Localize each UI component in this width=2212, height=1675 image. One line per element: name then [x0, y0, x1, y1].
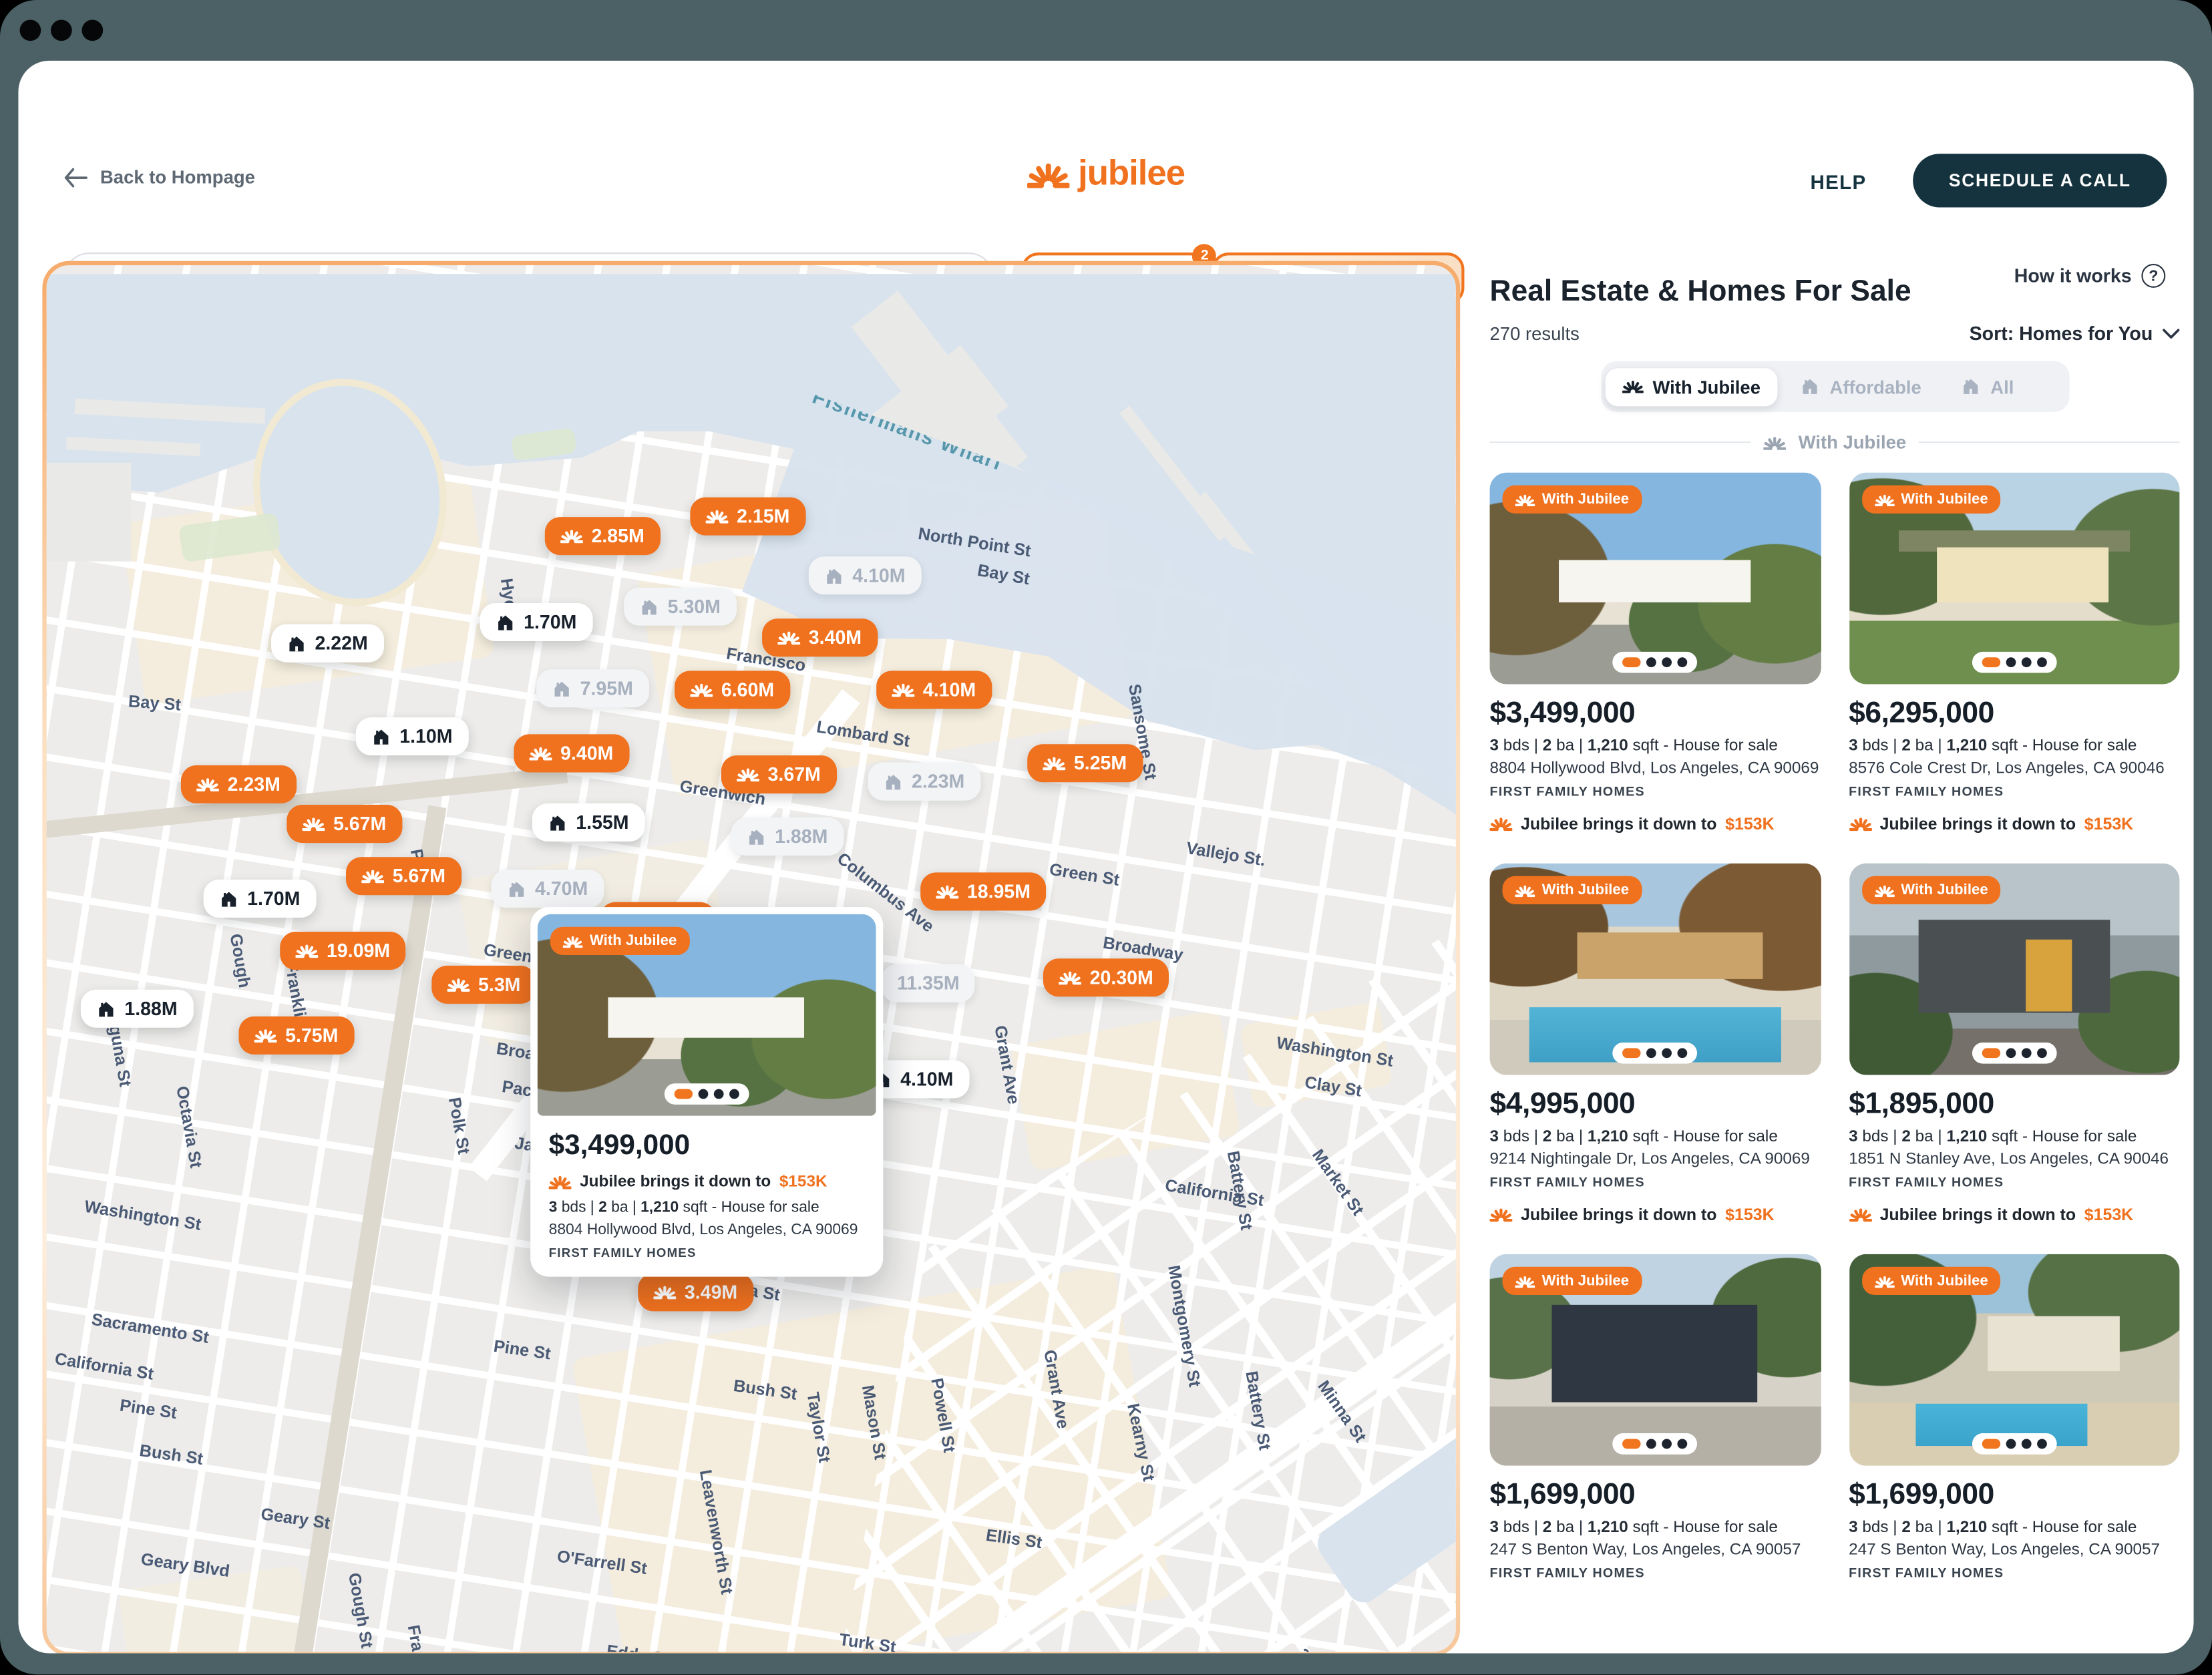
sunburst-logo-icon [1027, 159, 1069, 190]
listing-card[interactable]: With Jubilee $1,895,000 3 bds | 2 ba | 1… [1849, 864, 2179, 1225]
listing-price: $4,995,000 [1490, 1088, 1821, 1122]
screen: Back to Hompage jubilee HELP SCHEDULE A … [0, 0, 2212, 1675]
sunburst-icon [777, 628, 800, 646]
map-price-pin[interactable]: 5.25M [1027, 744, 1142, 782]
map-price-pin[interactable]: 3.40M [762, 618, 877, 657]
listing-promo: Jubilee brings it down to $153K [1849, 814, 2179, 834]
map-price-pin[interactable]: 3.67M [721, 755, 836, 793]
listing-broker: FIRST FAMILY HOMES [1849, 784, 2179, 798]
map-price-pin[interactable]: 2.22M [271, 624, 383, 663]
with-jubilee-badge: With Jubilee [550, 927, 690, 955]
pin-price-label: 19.09M [327, 940, 390, 962]
sunburst-icon [295, 942, 318, 960]
window-dot[interactable] [20, 20, 41, 41]
promo-text: Jubilee brings it down to [1521, 1205, 1717, 1225]
app-window: Back to Hompage jubilee HELP SCHEDULE A … [18, 61, 2193, 1654]
house-icon [824, 566, 844, 586]
pin-price-label: 5.25M [1074, 753, 1127, 774]
map-marina [47, 463, 132, 562]
pin-price-label: 5.67M [393, 866, 445, 887]
house-icon [96, 998, 116, 1018]
pin-price-label: 4.70M [535, 878, 588, 900]
map-price-pin[interactable]: 5.75M [238, 1016, 353, 1055]
map-listing-popup[interactable]: With Jubilee $3,499,000 Jubilee brings i… [530, 907, 883, 1276]
listing-price: $1,699,000 [1849, 1479, 2179, 1513]
help-link[interactable]: HELP [1811, 171, 1867, 194]
pin-price-label: 4.10M [923, 679, 976, 701]
sunburst-icon [254, 1027, 277, 1045]
sunburst-icon [1874, 492, 1894, 507]
sunburst-icon [196, 775, 219, 793]
window-dot[interactable] [51, 20, 72, 41]
badge-label: With Jubilee [1901, 491, 1988, 508]
pin-price-label: 2.15M [737, 506, 789, 527]
house-icon [219, 889, 239, 909]
house-icon [884, 771, 904, 791]
listing-price: $1,699,000 [1490, 1479, 1821, 1513]
map-price-pin[interactable]: 5.30M [624, 588, 736, 626]
map-price-pin[interactable]: 6.60M [675, 671, 789, 709]
with-jubilee-badge: With Jubilee [1503, 1267, 1642, 1295]
map-price-pin[interactable]: 20.30M [1043, 958, 1169, 996]
sunburst-icon [690, 681, 713, 699]
sunburst-icon [1874, 882, 1894, 898]
chevron-down-icon [2163, 328, 2179, 339]
promo-amount: $153K [1725, 814, 1774, 834]
sunburst-icon [361, 867, 384, 885]
photo-carousel-dots[interactable] [1972, 1043, 2056, 1064]
pin-price-label: 7.95M [580, 678, 633, 699]
with-jubilee-badge: With Jubilee [1861, 1267, 2001, 1295]
listing-meta: 3 bds | 2 ba | 1,210 sqft - House for sa… [1490, 1519, 1821, 1536]
listing-broker: FIRST FAMILY HOMES [1490, 784, 1821, 798]
listing-broker: FIRST FAMILY HOMES [1849, 1175, 2179, 1189]
promo-amount: $153K [2084, 1205, 2133, 1225]
tab-label: Affordable [1829, 376, 1921, 397]
pin-price-label: 1.88M [124, 998, 177, 1019]
pin-price-label: 2.23M [912, 771, 964, 792]
window-dot[interactable] [82, 20, 104, 41]
sunburst-icon [706, 507, 729, 525]
pin-price-label: 1.88M [775, 826, 827, 848]
map-price-pin[interactable]: 2.85M [545, 517, 660, 555]
listing-meta: 3 bds | 2 ba | 1,210 sqft - House for sa… [1849, 1519, 2179, 1536]
map-price-pin[interactable]: 2.23M [868, 763, 980, 801]
tab-with-jubilee[interactable]: With Jubilee [1605, 367, 1778, 405]
sunburst-icon [737, 765, 759, 783]
popup-address: 8804 Hollywood Blvd, Los Angeles, CA 900… [549, 1222, 865, 1238]
with-jubilee-badge: With Jubilee [1861, 486, 2001, 514]
sunburst-icon [549, 1173, 572, 1190]
badge-label: With Jubilee [1542, 491, 1629, 508]
map-price-pin[interactable]: 18.95M [920, 872, 1046, 910]
pin-price-label: 5.3M [478, 974, 520, 996]
map-price-pin[interactable]: 4.70M [492, 870, 604, 908]
map-price-pin[interactable]: 4.10M [876, 671, 991, 709]
sunburst-icon [303, 815, 325, 833]
pin-price-label: 5.30M [668, 596, 721, 617]
badge-label: With Jubilee [1542, 1272, 1629, 1289]
badge-label: With Jubilee [1901, 882, 1988, 898]
listing-card[interactable]: With Jubilee $1,699,000 3 bds | 2 ba | 1… [1490, 1254, 1821, 1580]
listing-address: 247 S Benton Way, Los Angeles, CA 90057 [1490, 1542, 1821, 1559]
listing-address: 9214 Nightingale Dr, Los Angeles, CA 900… [1490, 1151, 1821, 1168]
sunburst-icon [530, 744, 552, 762]
map-price-pin[interactable]: 9.40M [514, 734, 628, 772]
listing-photo[interactable]: With Jubilee [1849, 864, 2179, 1075]
results-panel: Real Estate & Homes For Sale 270 results… [1471, 261, 2193, 1654]
listing-photo[interactable]: With Jubilee [1490, 1254, 1821, 1466]
map-price-pin[interactable]: 1.88M [731, 817, 844, 856]
sunburst-icon [1490, 1206, 1513, 1223]
promo-text: Jubilee brings it down to [1880, 1205, 2076, 1225]
desktop-background: Back to Hompage jubilee HELP SCHEDULE A … [0, 0, 2212, 1675]
listing-meta: 3 bds | 2 ba | 1,210 sqft - House for sa… [1849, 738, 2179, 755]
listing-price: $6,295,000 [1849, 697, 2179, 731]
map-price-pin[interactable]: 1.70M [480, 603, 592, 641]
house-icon [496, 612, 516, 632]
listing-address: 247 S Benton Way, Los Angeles, CA 90057 [1849, 1542, 2179, 1559]
map-price-pin[interactable]: 7.95M [536, 669, 649, 707]
pin-price-label: 1.55M [576, 812, 628, 833]
listing-meta: 3 bds | 2 ba | 1,210 sqft - House for sa… [1490, 738, 1821, 755]
listing-photo[interactable]: With Jubilee [1849, 1254, 2179, 1466]
sort-dropdown[interactable]: Sort: Homes for You [1970, 323, 2180, 345]
popup-price: $3,499,000 [549, 1130, 865, 1163]
listing-meta: 3 bds | 2 ba | 1,210 sqft - House for sa… [1849, 1129, 2179, 1145]
listing-photo[interactable]: With Jubilee [1490, 864, 1821, 1075]
listing-broker: FIRST FAMILY HOMES [1849, 1566, 2179, 1580]
sunburst-icon [447, 976, 470, 994]
pin-price-label: 4.10M [852, 565, 905, 586]
map-price-pin[interactable]: 1.55M [532, 803, 644, 842]
logo-text: jubilee [1078, 154, 1185, 194]
house-icon [507, 879, 527, 899]
map-price-pin[interactable]: 11.35M [882, 964, 975, 1002]
house-icon [371, 727, 391, 747]
arrow-left-icon [63, 167, 87, 187]
promo-text: Jubilee brings it down to [580, 1173, 771, 1190]
listing-promo: Jubilee brings it down to $153K [1490, 814, 1821, 834]
pin-price-label: 1.70M [247, 888, 300, 910]
listing-card[interactable]: With Jubilee $3,499,000 3 bds | 2 ba | 1… [1490, 473, 1821, 834]
listing-photo[interactable]: With Jubilee [1849, 473, 2179, 685]
sunburst-icon [1874, 1273, 1894, 1288]
map-price-pin[interactable]: 5.67M [287, 805, 401, 843]
listing-price: $1,895,000 [1849, 1088, 2179, 1122]
photo-carousel-dots[interactable] [1972, 1433, 2056, 1455]
pin-price-label: 6.60M [721, 679, 774, 701]
jubilee-logo[interactable]: jubilee [1027, 154, 1185, 194]
listing-card[interactable]: With Jubilee $4,995,000 3 bds | 2 ba | 1… [1490, 864, 1821, 1225]
listing-price: $3,499,000 [1490, 697, 1821, 731]
divider-label: With Jubilee [1799, 431, 1906, 453]
sunburst-icon [1059, 968, 1081, 986]
map-price-pin[interactable]: 4.10M [809, 556, 921, 594]
street-label: Bay St [128, 691, 182, 715]
promo-text: Jubilee brings it down to [1521, 814, 1717, 834]
listing-meta: 3 bds | 2 ba | 1,210 sqft - House for sa… [1490, 1129, 1821, 1145]
sunburst-icon [936, 882, 958, 900]
pin-price-label: 18.95M [967, 881, 1031, 902]
sunburst-icon [653, 1283, 676, 1301]
badge-label: With Jubilee [1901, 1272, 1988, 1289]
house-icon [552, 679, 572, 699]
sunburst-icon [1849, 815, 1871, 832]
listing-card[interactable]: With Jubilee $6,295,000 3 bds | 2 ba | 1… [1849, 473, 2179, 834]
badge-label: With Jubilee [1542, 882, 1629, 898]
listing-address: 8804 Hollywood Blvd, Los Angeles, CA 900… [1490, 761, 1821, 777]
schedule-call-button[interactable]: SCHEDULE A CALL [1913, 154, 2167, 207]
sort-label: Sort: Homes for You [1970, 323, 2153, 345]
map-price-pin[interactable]: 3.49M [638, 1273, 753, 1311]
with-jubilee-badge: With Jubilee [1503, 876, 1642, 904]
pin-price-label: 2.23M [228, 774, 281, 795]
popup-meta: 3 bds | 2 ba | 1,210 sqft - House for sa… [549, 1199, 865, 1216]
with-jubilee-badge: With Jubilee [1861, 876, 2001, 904]
with-jubilee-divider: With Jubilee [1490, 431, 2180, 453]
sunburst-icon [892, 681, 914, 699]
photo-carousel-dots[interactable] [1613, 652, 1698, 673]
house-icon [548, 813, 568, 833]
promo-amount: $153K [2084, 814, 2133, 834]
promo-text: Jubilee brings it down to [1880, 814, 2076, 834]
map-price-pin[interactable]: 1.10M [356, 717, 468, 755]
listing-photo[interactable]: With Jubilee [1490, 473, 1821, 685]
sunburst-icon [563, 933, 583, 948]
back-to-homepage-link[interactable]: Back to Hompage [63, 166, 255, 188]
sunburst-icon [1515, 1273, 1535, 1288]
house-icon [287, 633, 307, 653]
sunburst-icon [1515, 882, 1535, 898]
pin-price-label: 1.10M [399, 726, 452, 747]
pin-price-label: 3.40M [809, 627, 862, 648]
map-price-pin[interactable]: 2.15M [690, 498, 805, 536]
app-header: Back to Hompage jubilee HELP SCHEDULE A … [18, 61, 2193, 224]
sunburst-icon [1515, 492, 1535, 507]
listing-address: 1851 N Stanley Ave, Los Angeles, CA 9004… [1849, 1151, 2179, 1168]
pin-price-label: 2.22M [315, 632, 368, 654]
photo-carousel-dots[interactable] [665, 1083, 749, 1105]
map-price-pin[interactable]: 19.09M [280, 932, 405, 970]
pin-price-label: 5.67M [333, 813, 386, 835]
map-price-pin[interactable]: 1.70M [204, 880, 316, 918]
map-price-pin[interactable]: 1.88M [81, 990, 193, 1028]
sunburst-icon [1490, 815, 1513, 832]
map-price-pin[interactable]: 5.67M [346, 857, 461, 895]
back-label: Back to Hompage [100, 166, 255, 188]
house-icon [1961, 377, 1981, 397]
results-count: 270 results [1490, 323, 1580, 345]
map-price-pin[interactable]: 2.23M [181, 765, 296, 803]
sunburst-icon [1043, 754, 1065, 772]
house-icon [747, 827, 767, 847]
popup-broker: FIRST FAMILY HOMES [549, 1246, 865, 1260]
map-frame: Fishermans WharfNorth Point StBay StBay … [42, 261, 1460, 1654]
with-jubilee-badge: With Jubilee [1503, 486, 1642, 514]
listing-card[interactable]: With Jubilee $1,699,000 3 bds | 2 ba | 1… [1849, 1254, 2179, 1580]
pin-price-label: 4.10M [900, 1069, 953, 1090]
pin-price-label: 2.85M [592, 526, 644, 547]
listing-promo: Jubilee brings it down to $153K [1490, 1205, 1821, 1225]
tab-label: With Jubilee [1652, 376, 1760, 397]
sunburst-icon [560, 527, 583, 545]
window-controls[interactable] [20, 20, 104, 41]
sunburst-icon [1622, 378, 1643, 395]
pin-price-label: 11.35M [897, 972, 960, 994]
promo-amount: $153K [1725, 1205, 1774, 1225]
sunburst-icon [1763, 434, 1786, 451]
map[interactable]: Fishermans WharfNorth Point StBay StBay … [47, 265, 1456, 1652]
listing-tabs: With JubileeAffordableAll [1600, 361, 2068, 412]
map-price-pin[interactable]: 5.3M [431, 966, 536, 1004]
listing-grid: With Jubilee $3,499,000 3 bds | 2 ba | 1… [1490, 473, 2180, 1580]
pin-price-label: 1.70M [524, 612, 576, 633]
listing-broker: FIRST FAMILY HOMES [1490, 1175, 1821, 1189]
listing-promo: Jubilee brings it down to $153K [1849, 1205, 2179, 1225]
pin-price-label: 3.49M [685, 1282, 737, 1303]
listing-broker: FIRST FAMILY HOMES [1490, 1566, 1821, 1580]
popup-promo: Jubilee brings it down to $153K [549, 1173, 865, 1190]
tab-affordable[interactable]: Affordable [1783, 367, 1938, 405]
photo-carousel-dots[interactable] [1613, 1433, 1698, 1455]
tab-label: All [1990, 376, 2014, 397]
popup-photo[interactable]: With Jubilee [538, 914, 876, 1116]
listing-address: 8576 Cole Crest Dr, Los Angeles, CA 9004… [1849, 761, 2179, 777]
pin-price-label: 9.40M [560, 743, 613, 764]
results-title: Real Estate & Homes For Sale [1490, 275, 2180, 309]
house-icon [1800, 377, 1820, 397]
photo-carousel-dots[interactable] [1972, 652, 2056, 673]
tab-all[interactable]: All [1944, 367, 2031, 405]
photo-carousel-dots[interactable] [1613, 1043, 1698, 1064]
house-icon [639, 596, 659, 616]
sunburst-icon [1849, 1206, 1871, 1223]
pin-price-label: 20.30M [1090, 967, 1153, 988]
pin-price-label: 5.75M [285, 1025, 338, 1047]
promo-amount: $153K [779, 1173, 827, 1190]
pin-price-label: 3.67M [768, 764, 821, 785]
badge-label: With Jubilee [590, 932, 677, 949]
